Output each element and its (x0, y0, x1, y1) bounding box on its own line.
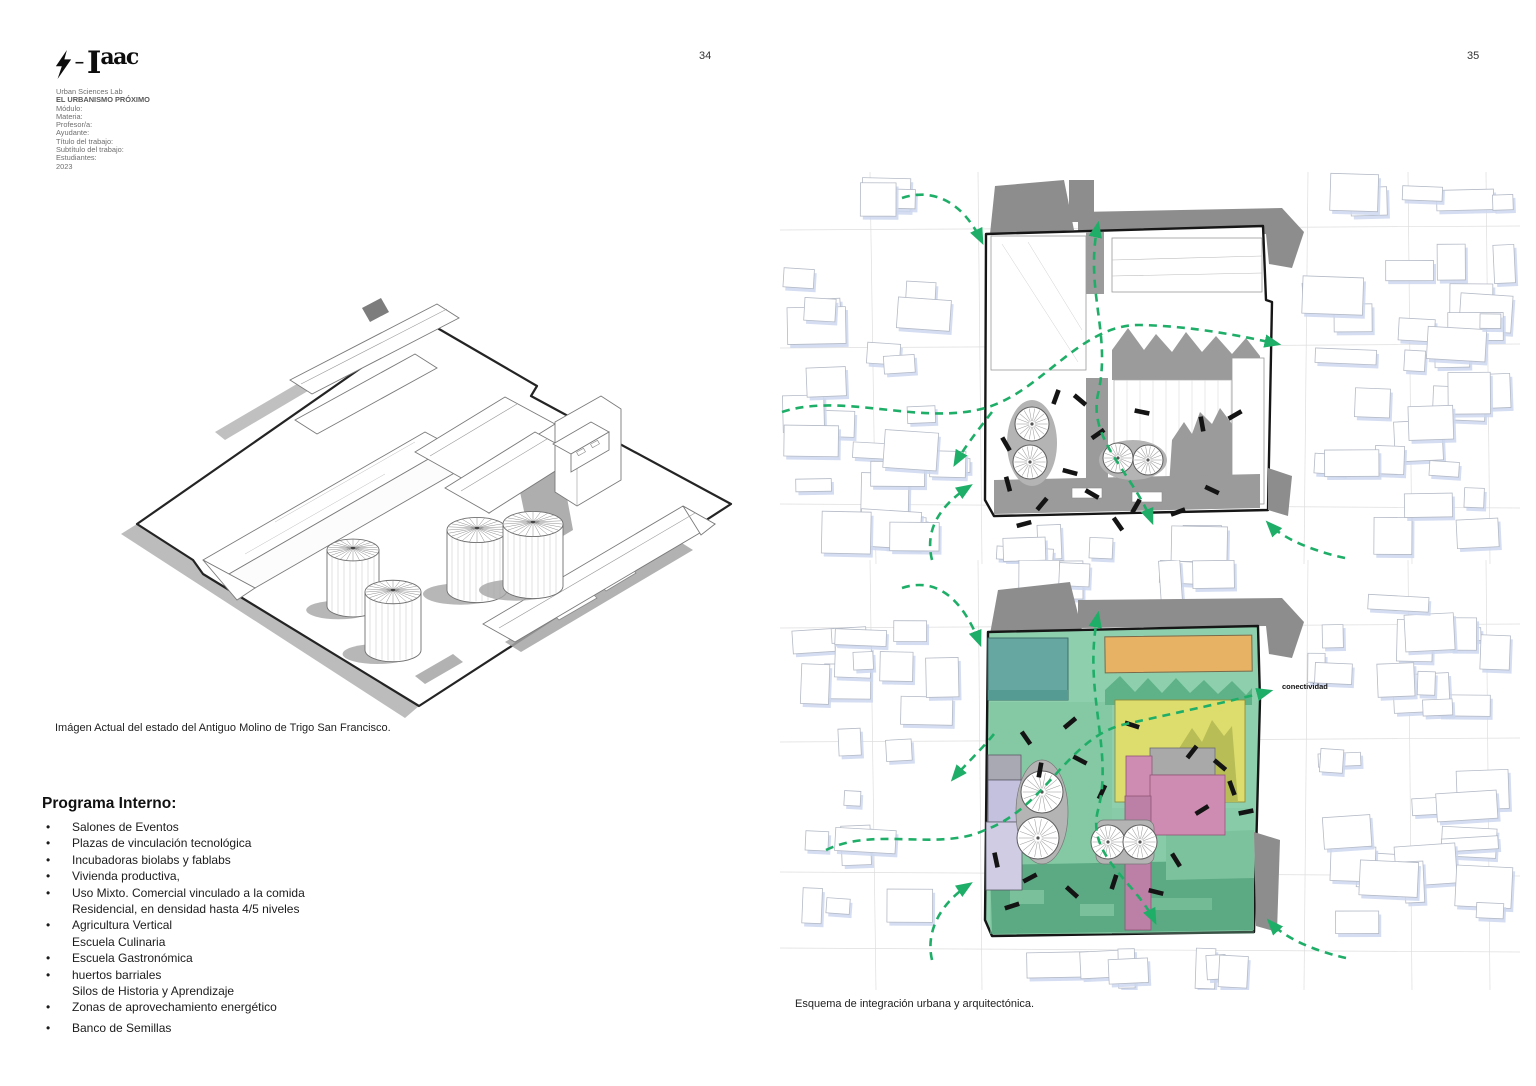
east-building-mass (1268, 468, 1292, 516)
program-item: •huertos barriales (42, 967, 462, 983)
program-item: •Incubadoras biolabs y fablabs (42, 852, 462, 868)
context-building (890, 522, 940, 551)
context-building (1302, 276, 1364, 315)
page-number: 35 (1467, 50, 1479, 62)
program-item: •Uso Mixto. Comercial vinculado a la com… (42, 885, 462, 901)
lightning-bolt-icon (55, 49, 72, 80)
plate-notch (362, 298, 389, 322)
context-building (883, 430, 939, 471)
context-building (1374, 517, 1412, 554)
header-field: 2023 (56, 163, 150, 171)
context-building (1404, 613, 1455, 652)
context-building (907, 406, 936, 424)
context-building (1402, 186, 1442, 202)
axonometric-drawing (85, 292, 750, 722)
context-building (1404, 350, 1426, 372)
program-heading: Programa Interno: (42, 795, 462, 813)
context-building (1408, 405, 1454, 440)
context-building (883, 354, 915, 374)
context-building (796, 479, 832, 492)
context-building (1325, 450, 1379, 477)
tree-mark (1239, 810, 1254, 813)
context-building (1437, 244, 1465, 280)
program-item: Silos de Historia y Aprendizaje (42, 983, 462, 999)
context-building (804, 297, 836, 321)
context-building (853, 651, 874, 670)
program-item: •Agricultura Vertical (42, 917, 462, 933)
north-building-mass (990, 180, 1074, 234)
context-building (1423, 699, 1453, 716)
program-item: •Vivienda productiva, (42, 868, 462, 884)
context-building (901, 696, 953, 725)
context-building (1436, 790, 1498, 822)
document-spread: – I aac Urban Sciences Lab EL URBANISMO … (0, 0, 1536, 1086)
context-building (1386, 260, 1434, 280)
context-building (1404, 493, 1452, 517)
context-building (1089, 537, 1113, 559)
context-building (1159, 560, 1183, 602)
context-building (783, 268, 814, 289)
context-building (887, 889, 933, 922)
context-building (802, 888, 823, 924)
context-building (784, 425, 839, 457)
program-item: Residencial, en densidad hasta 4/5 nivel… (42, 901, 462, 917)
zone-lavender (986, 822, 1022, 890)
context-building (1456, 518, 1499, 549)
urban-diagram-existing (780, 172, 1520, 564)
context-building (792, 628, 835, 653)
context-building (1417, 671, 1435, 695)
context-building (800, 664, 829, 705)
connectivity-label: conectividad (1282, 682, 1328, 691)
tree-mark (994, 853, 997, 868)
context-building (1027, 952, 1089, 978)
program-item: •Banco de Semillas (42, 1020, 462, 1036)
east-building-mass (1254, 832, 1280, 932)
context-building (1426, 326, 1486, 362)
context-building (1171, 526, 1228, 562)
zone-orange (1105, 635, 1252, 673)
context-building (1319, 748, 1343, 773)
zone-pink (1150, 775, 1225, 835)
context-building (886, 739, 913, 762)
context-building (1476, 902, 1504, 918)
context-building (806, 367, 846, 398)
tree-mark (1114, 518, 1123, 530)
urban-diagram-proposal: conectividad (780, 560, 1520, 990)
context-building (894, 621, 927, 642)
context-building (1448, 372, 1491, 414)
context-building (1493, 244, 1516, 283)
context-building (1322, 624, 1343, 647)
program-item: •Zonas de aprovechamiento energético (42, 999, 462, 1015)
program-item: •Salones de Eventos (42, 819, 462, 835)
flow-arrow (1269, 921, 1346, 958)
tree-mark (1017, 522, 1031, 526)
zone-teal-edge (988, 690, 1068, 700)
context-building (1464, 488, 1484, 508)
context-building (1315, 348, 1377, 365)
context-building (838, 728, 861, 756)
context-building (1359, 860, 1419, 897)
context-building (1354, 388, 1390, 418)
context-building (926, 657, 959, 697)
site-plate (137, 322, 731, 706)
context-building (1429, 461, 1459, 478)
context-building (1377, 663, 1415, 698)
iaac-logo: – I aac (55, 48, 138, 84)
project-header: Urban Sciences Lab EL URBANISMO PRÓXIMO … (56, 88, 150, 171)
zone-mid-green (1166, 830, 1254, 880)
context-building (1368, 594, 1429, 612)
context-building (896, 297, 951, 331)
context-building (805, 831, 829, 851)
logo-dash: – (75, 54, 84, 72)
context-building (1436, 189, 1494, 211)
logo-text-suffix: aac (100, 46, 137, 68)
context-building (821, 511, 871, 554)
program-item: •Escuela Gastronómica (42, 950, 462, 966)
context-building (1480, 314, 1501, 329)
context-building (835, 827, 897, 853)
context-building (1193, 560, 1235, 588)
diagram-caption: Esquema de integración urbana y arquitec… (795, 998, 1255, 1010)
tree-mark (1135, 410, 1150, 413)
axon-caption: Imágen Actual del estado del Antiguo Mol… (55, 722, 515, 734)
page-number: 34 (699, 50, 711, 62)
context-building (1480, 635, 1511, 670)
program-item: •Plazas de vinculación tecnológica (42, 835, 462, 851)
program-interno: Programa Interno: •Salones de Eventos •P… (42, 795, 462, 1036)
context-building (880, 652, 913, 682)
context-building (1108, 958, 1148, 984)
program-item: Escuela Culinaria (42, 934, 462, 950)
page-34: – I aac Urban Sciences Lab EL URBANISMO … (0, 0, 768, 1086)
context-building (1492, 194, 1513, 210)
north-building-mass (990, 582, 1082, 634)
context-building (860, 183, 896, 216)
zone-gray-roof (1150, 748, 1215, 775)
context-building (1322, 815, 1371, 850)
logo-text: I (87, 48, 101, 79)
zone-slate-band (988, 755, 1021, 780)
context-building (1218, 955, 1248, 988)
flow-arrow (1268, 523, 1345, 558)
context-building (844, 791, 861, 807)
context-building (835, 629, 887, 647)
context-building (826, 898, 850, 915)
context-building (1330, 173, 1379, 211)
context-building (1003, 537, 1046, 561)
context-building (1336, 911, 1379, 934)
tree-mark (1201, 417, 1204, 432)
tree-mark (1039, 763, 1042, 778)
context-building (1455, 865, 1513, 908)
